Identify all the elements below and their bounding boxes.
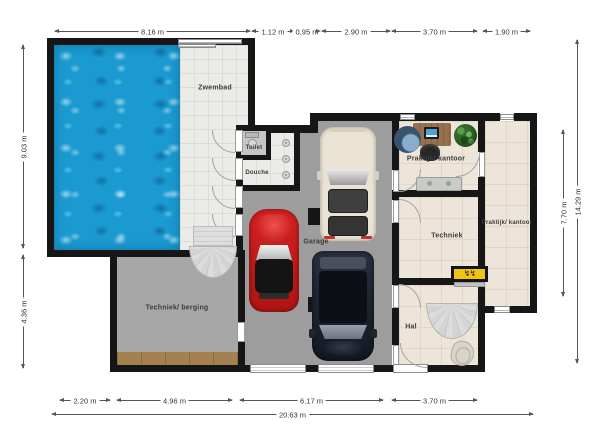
window [494,306,510,313]
plant-icon [454,124,477,147]
wall [392,190,485,197]
window [500,114,514,120]
door [237,322,245,342]
wall [248,38,255,132]
sideboard-icon [416,177,462,191]
pool-water [54,45,180,250]
room-label-techniek-berging: Techniek/ berging [146,305,209,312]
window [178,44,216,48]
wall [240,155,271,160]
monitor-screen [426,129,437,137]
sideboard-knob [427,181,432,186]
wall [238,250,245,322]
wall [110,365,238,372]
dark-suv-icon [312,251,374,361]
wall [428,365,485,372]
room-label-douche: Douche [245,170,268,176]
wall [392,308,399,345]
shower-head-icon [282,171,290,179]
electrical-panel-icon: ↯↯ [451,266,488,282]
dimension-top-4: 2.90 m [322,31,390,32]
garage-door [250,364,306,373]
wall [294,125,300,191]
dimension-top-6: 1.90 m [483,31,530,32]
room-label-praktijk-kantoor-top: Praktijk/ kantoor [407,156,465,163]
dimension-top-5: 3.70 m [392,31,477,32]
dimension-top-1: 8.16 m [55,31,250,32]
dimension-left-2: 4.36 m [23,255,24,368]
wall [392,223,399,285]
wall [47,38,54,257]
stairs-landing [193,226,233,246]
dimension-bottom-3: 6.17 m [240,400,383,401]
dimension-right-2: 14.29 m [577,40,578,363]
electrical-panel-shelf [454,282,485,287]
red-car-icon [249,209,299,312]
wall [478,113,500,121]
dimension-left-1: 9.03 m [23,45,24,248]
dimension-bottom-2: 4.96 m [117,400,232,401]
shower-head-icon [282,139,290,147]
wall [236,236,243,250]
dimension-bottom-total: 20.63 m [52,414,533,415]
door [393,345,399,366]
dimension-bottom-1: 2.20 m [60,400,110,401]
brown-tile-strip [117,352,238,365]
door [235,214,243,236]
room-label-techniek: Techniek [431,233,462,240]
room-label-zwembad: Zwembad [198,85,232,92]
dimension-top-2: 1.12 m [252,31,294,32]
garage-door [318,364,374,373]
wall [47,250,192,257]
wall [110,250,117,372]
floorplan-canvas: ↯↯ Zwembad Toilet Douche Techniek/ bergi… [0,0,600,424]
wall [236,185,300,191]
room-label-toilet: Toilet [246,145,263,151]
door [235,186,243,208]
wall [310,113,485,121]
window [400,114,415,120]
sideboard-knob [446,181,451,186]
wall [510,306,537,313]
room-label-hal: Hal [405,324,417,331]
dimension-top-3: 0.95 m [294,31,320,32]
floor-praktijk-kantoor-right [485,121,530,306]
door [235,130,243,152]
wall [306,365,318,372]
room-label-garage: Garage [303,239,328,246]
dimension-right-1: 7.70 m [563,130,564,296]
toilet-icon [245,132,259,138]
tub-chair-icon [394,126,421,153]
door [479,152,485,177]
wall [374,365,393,372]
shower-head-icon [282,155,290,163]
white-van-icon [320,127,376,241]
dimension-bottom-4: 3.70 m [392,400,477,401]
wall [478,306,494,313]
room-label-praktijk-kantoor-right: Praktijk/ kantoor [482,220,532,226]
door [235,158,243,180]
wall [530,113,537,313]
wall [232,365,250,372]
